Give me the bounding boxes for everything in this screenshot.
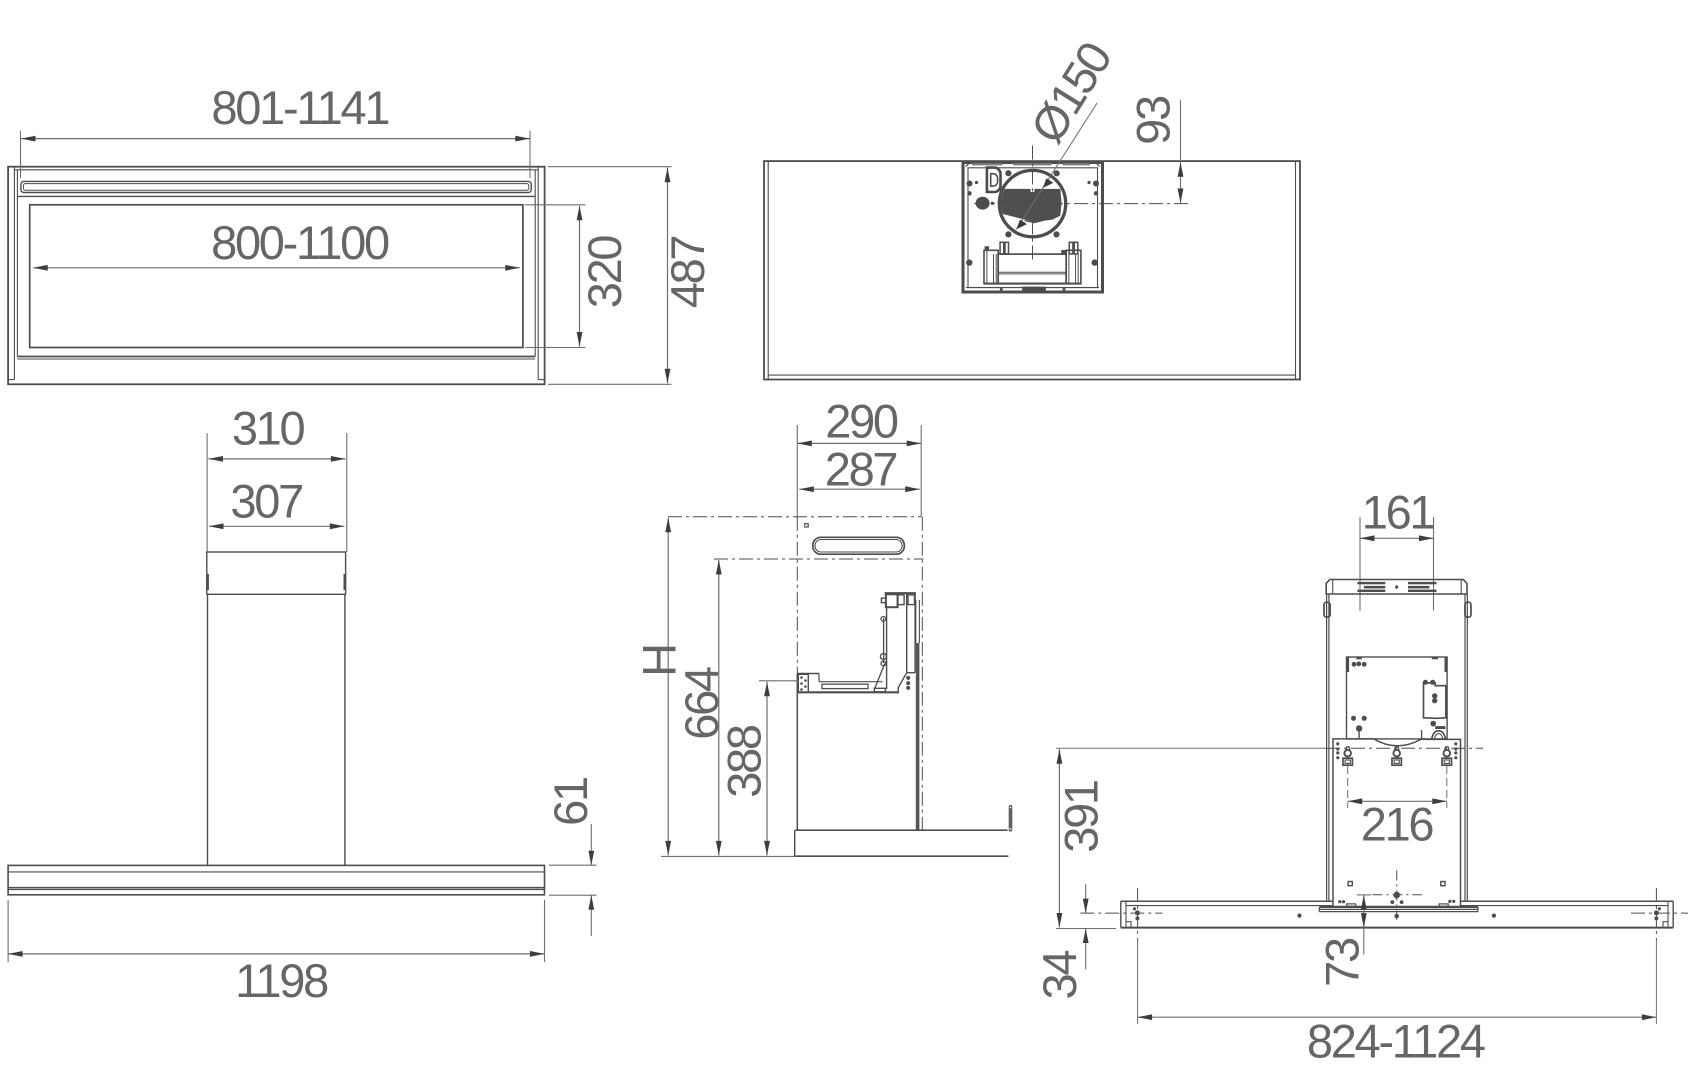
svg-text:487: 487 (661, 237, 714, 309)
svg-text:290: 290 (825, 394, 898, 447)
svg-text:61: 61 (544, 778, 597, 826)
svg-text:824-1124: 824-1124 (1307, 1015, 1485, 1068)
svg-text:801-1141: 801-1141 (211, 81, 388, 134)
svg-text:34: 34 (1033, 951, 1086, 1000)
svg-text:320: 320 (578, 236, 631, 309)
svg-text:73: 73 (1316, 938, 1369, 987)
svg-text:Ø150: Ø150 (1020, 33, 1122, 152)
svg-text:1198: 1198 (235, 954, 328, 1007)
svg-text:800-1100: 800-1100 (211, 216, 389, 269)
svg-text:161: 161 (1362, 486, 1434, 539)
svg-text:93: 93 (1127, 96, 1180, 145)
svg-text:216: 216 (1361, 798, 1434, 851)
svg-text:391: 391 (1055, 781, 1108, 853)
svg-text:287: 287 (825, 443, 897, 496)
svg-text:307: 307 (230, 475, 302, 528)
svg-text:388: 388 (717, 725, 770, 798)
svg-text:310: 310 (232, 402, 305, 455)
